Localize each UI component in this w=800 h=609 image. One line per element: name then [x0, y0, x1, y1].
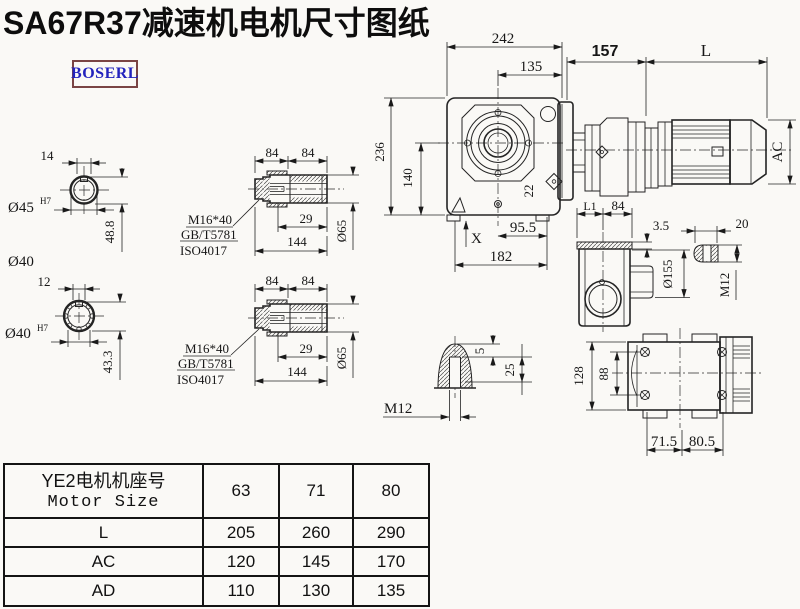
- dim-29-b: 29: [300, 341, 313, 356]
- motor-size-table: YE2电机机座号 Motor Size 63 71 80 L 205 260 2…: [3, 463, 430, 607]
- AC-71: 145: [279, 547, 353, 576]
- dim-71-5: 71.5: [651, 434, 677, 450]
- dim-80-5: 80.5: [689, 434, 715, 450]
- dim-depth-48-8: 48.8: [102, 221, 117, 244]
- L-71: 260: [279, 518, 353, 547]
- table-row-L: L 205 260 290: [4, 518, 429, 547]
- row-label-AD: AD: [4, 576, 203, 606]
- row-label-L: L: [4, 518, 203, 547]
- bushing-bottom-view: 84 84 M16*40 GB/T5781 ISO4017 29 144 Ø65: [177, 273, 359, 387]
- dim-M12-side: M12: [717, 273, 732, 298]
- dim-AC: AC: [770, 142, 786, 163]
- L-80: 290: [353, 518, 429, 547]
- bottom-view: 128 88 71.5 80.5: [571, 328, 762, 456]
- AD-71: 130: [279, 576, 353, 606]
- dim-25: 25: [502, 364, 517, 377]
- dim-key-width-45: 14: [41, 148, 55, 163]
- table-row-AD: AD 110 130 135: [4, 576, 429, 606]
- AC-63: 120: [203, 547, 279, 576]
- dim-29-a: 29: [300, 211, 313, 226]
- table-row-AC: AC 120 145 170: [4, 547, 429, 576]
- dim-dia-65-b: Ø65: [334, 347, 349, 369]
- dim-M12-detail: M12: [384, 401, 412, 417]
- coupling-fins: [733, 346, 750, 401]
- dim-128: 128: [571, 366, 586, 386]
- dim-bore-40-fit: H7: [37, 323, 48, 333]
- dim-84-b1: 84: [266, 273, 280, 288]
- col-71: 71: [279, 464, 353, 518]
- dim-135: 135: [520, 59, 543, 75]
- dim-84-b2: 84: [302, 273, 316, 288]
- dim-95-5: 95.5: [510, 220, 536, 236]
- dim-157: 157: [592, 43, 619, 60]
- dim-depth-43-3: 43.3: [100, 351, 115, 374]
- AD-63: 110: [203, 576, 279, 606]
- dim-140: 140: [400, 168, 415, 188]
- dim-5: 5: [472, 348, 487, 355]
- table-header-row: YE2电机机座号 Motor Size 63 71 80: [4, 464, 429, 518]
- col-63: 63: [203, 464, 279, 518]
- dim-dia-155: Ø155: [660, 260, 675, 289]
- dim-236: 236: [372, 142, 387, 162]
- col-80: 80: [353, 464, 429, 518]
- motor-fins: [672, 126, 730, 178]
- shaft-end-detail: 5 25 M12: [383, 335, 532, 421]
- dim-bore-40: Ø40: [5, 326, 31, 342]
- header-motor-size-en: Motor Size: [5, 493, 202, 512]
- dim-242: 242: [492, 31, 515, 47]
- standard2-a: ISO4017: [180, 243, 227, 258]
- dim-L1: L1: [583, 199, 596, 213]
- foot-bolt-holes: [641, 348, 727, 400]
- dim-84-a2: 84: [302, 145, 316, 160]
- clamp-detail: [452, 198, 465, 212]
- lifting-eye-hole: [541, 107, 556, 122]
- AD-80: 135: [353, 576, 429, 606]
- header-motor-size-cn: YE2电机机座号: [5, 470, 202, 493]
- dim-144-b: 144: [287, 364, 307, 379]
- dim-22: 22: [521, 185, 536, 198]
- dim-84-side: 84: [612, 198, 626, 213]
- dim-3-5: 3.5: [653, 218, 669, 233]
- label-od-40: Ø40: [8, 254, 34, 270]
- row-label-AC: AC: [4, 547, 203, 576]
- dim-key-width-40: 12: [38, 274, 51, 289]
- main-front-view: 242 135 236 140 157 L AC 22 X 95.5 182: [372, 31, 796, 272]
- bushing-top-view: 84 84 M16*40 GB/T5781 ISO4017 29 144 Ø65: [180, 145, 359, 258]
- motor-end-cap: [730, 120, 766, 184]
- standard1-b: GB/T5781: [178, 356, 234, 371]
- AC-80: 170: [353, 547, 429, 576]
- L-63: 205: [203, 518, 279, 547]
- dim-84-a1: 84: [266, 145, 280, 160]
- dim-dia-65-a: Ø65: [334, 220, 349, 242]
- side-view: L1 84 3.5 20 M12 Ø155: [577, 198, 749, 332]
- shaft-section-bottom-view: 12 Ø40 H7 43.3: [5, 274, 126, 380]
- standard1-a: GB/T5781: [181, 227, 237, 242]
- dim-bore-45: Ø45: [8, 200, 34, 216]
- shaft-section-top-view: 14 Ø45 H7 48.8 Ø40: [8, 148, 128, 270]
- dim-88: 88: [596, 368, 611, 381]
- dim-144-a: 144: [287, 234, 307, 249]
- standard2-b: ISO4017: [177, 372, 224, 387]
- label-X: X: [471, 231, 482, 247]
- bolt-spec-b: M16*40: [185, 341, 229, 356]
- dim-L: L: [701, 41, 711, 60]
- dim-20: 20: [736, 216, 749, 231]
- bolt-spec-a: M16*40: [188, 212, 232, 227]
- dim-bore-45-fit: H7: [40, 196, 51, 206]
- header-motor-size: YE2电机机座号 Motor Size: [4, 464, 203, 518]
- dim-182: 182: [490, 249, 513, 265]
